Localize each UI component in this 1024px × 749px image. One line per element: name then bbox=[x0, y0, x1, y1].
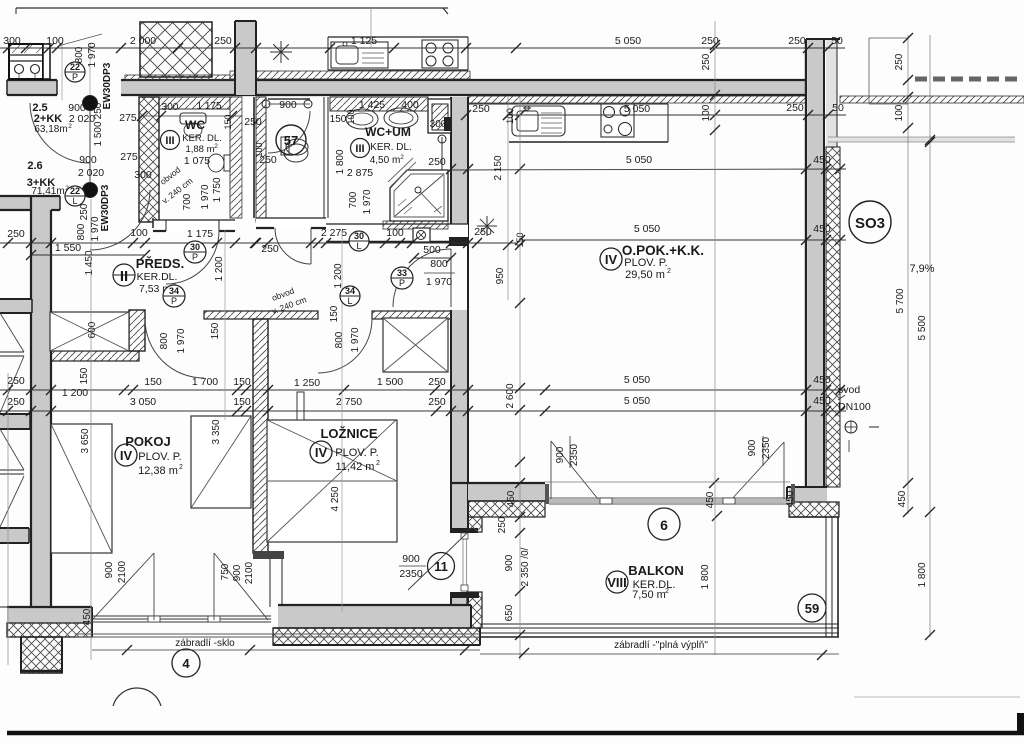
svg-text:250: 250 bbox=[214, 35, 232, 47]
svg-text:6: 6 bbox=[660, 517, 668, 533]
svg-text:EW30DP3: EW30DP3 bbox=[100, 184, 111, 231]
svg-text:WC+UM: WC+UM bbox=[365, 125, 411, 139]
svg-text:1 550: 1 550 bbox=[55, 242, 81, 254]
svg-text:700: 700 bbox=[182, 193, 193, 210]
svg-text:150: 150 bbox=[233, 376, 251, 388]
svg-text:250: 250 bbox=[79, 203, 90, 220]
svg-text:450: 450 bbox=[813, 395, 831, 407]
svg-text:IV: IV bbox=[315, 445, 328, 460]
svg-text:63,18m: 63,18m bbox=[34, 124, 67, 135]
svg-text:275: 275 bbox=[119, 112, 137, 124]
svg-text:250: 250 bbox=[497, 516, 508, 533]
svg-text:2350: 2350 bbox=[399, 568, 423, 580]
svg-text:DN100: DN100 bbox=[838, 401, 871, 413]
svg-text:2: 2 bbox=[400, 154, 404, 161]
svg-text:900: 900 bbox=[747, 439, 758, 456]
svg-text:5 050: 5 050 bbox=[615, 35, 641, 47]
svg-text:900: 900 bbox=[232, 564, 243, 581]
svg-text:2: 2 bbox=[376, 460, 380, 467]
svg-text:250: 250 bbox=[7, 375, 25, 387]
svg-text:II: II bbox=[120, 268, 128, 285]
svg-text:7,9%: 7,9% bbox=[909, 263, 934, 275]
svg-text:900: 900 bbox=[279, 99, 297, 111]
svg-text:30: 30 bbox=[354, 231, 364, 241]
svg-text:1 970: 1 970 bbox=[426, 276, 452, 288]
svg-text:950: 950 bbox=[495, 267, 506, 284]
svg-text:57: 57 bbox=[284, 133, 298, 148]
svg-text:1 125: 1 125 bbox=[351, 35, 377, 47]
svg-text:VIII: VIII bbox=[607, 575, 627, 590]
svg-text:2 020: 2 020 bbox=[78, 167, 104, 179]
svg-text:1 750: 1 750 bbox=[212, 177, 223, 202]
svg-text:100: 100 bbox=[130, 227, 148, 239]
svg-text:2350: 2350 bbox=[569, 443, 580, 466]
svg-text:250: 250 bbox=[472, 103, 490, 115]
svg-text:2: 2 bbox=[667, 268, 671, 275]
svg-text:PLOV. P.: PLOV. P. bbox=[138, 451, 181, 463]
svg-text:33: 33 bbox=[397, 268, 407, 278]
svg-text:2350: 2350 bbox=[761, 436, 772, 459]
svg-text:11,42 m: 11,42 m bbox=[336, 461, 375, 473]
svg-text:50: 50 bbox=[832, 102, 844, 114]
svg-text:1 075: 1 075 bbox=[184, 155, 210, 167]
svg-text:150: 150 bbox=[144, 376, 162, 388]
svg-text:KER. DL.: KER. DL. bbox=[370, 142, 412, 153]
svg-text:1 700: 1 700 bbox=[192, 376, 218, 388]
svg-text:250: 250 bbox=[261, 243, 279, 255]
svg-text:5 500: 5 500 bbox=[917, 315, 928, 340]
svg-text:100: 100 bbox=[701, 104, 712, 121]
svg-text:71,41m: 71,41m bbox=[31, 186, 64, 197]
svg-text:1 970: 1 970 bbox=[176, 328, 187, 353]
svg-text:150: 150 bbox=[233, 396, 251, 408]
svg-text:900: 900 bbox=[402, 553, 420, 565]
svg-text:1 970: 1 970 bbox=[200, 184, 211, 209]
svg-text:1 970: 1 970 bbox=[362, 189, 373, 214]
svg-text:L: L bbox=[72, 196, 77, 206]
svg-text:100: 100 bbox=[346, 109, 356, 124]
svg-text:P: P bbox=[72, 72, 78, 82]
svg-text:1 250: 1 250 bbox=[294, 377, 320, 389]
svg-text:450: 450 bbox=[813, 223, 831, 235]
svg-text:700: 700 bbox=[348, 191, 359, 208]
svg-text:400: 400 bbox=[401, 99, 419, 111]
svg-text:250: 250 bbox=[7, 228, 25, 240]
svg-text:1 970: 1 970 bbox=[87, 42, 98, 67]
svg-text:1 175: 1 175 bbox=[187, 228, 213, 240]
svg-text:800: 800 bbox=[430, 258, 448, 270]
svg-text:300: 300 bbox=[430, 119, 447, 130]
svg-text:2 150: 2 150 bbox=[493, 155, 504, 180]
svg-text:2 750: 2 750 bbox=[336, 396, 362, 408]
svg-text:3 050: 3 050 bbox=[130, 396, 156, 408]
svg-text:100: 100 bbox=[46, 35, 64, 47]
svg-text:IV: IV bbox=[120, 448, 133, 463]
svg-text:800: 800 bbox=[76, 223, 87, 240]
svg-text:900: 900 bbox=[79, 154, 97, 166]
svg-text:800: 800 bbox=[159, 332, 170, 349]
svg-text:5 050: 5 050 bbox=[624, 103, 650, 115]
svg-text:29,50 m: 29,50 m bbox=[625, 269, 665, 281]
svg-text:450: 450 bbox=[813, 374, 831, 386]
svg-text:5 050: 5 050 bbox=[626, 154, 652, 166]
svg-text:1 800: 1 800 bbox=[917, 562, 928, 587]
svg-text:450: 450 bbox=[705, 491, 716, 508]
svg-text:2 020: 2 020 bbox=[69, 113, 95, 125]
svg-text:PLOV. P.: PLOV. P. bbox=[335, 447, 378, 459]
svg-text:2 275: 2 275 bbox=[321, 227, 347, 239]
svg-text:svod: svod bbox=[838, 384, 860, 396]
svg-text:KER.DL.: KER.DL. bbox=[137, 271, 178, 283]
svg-text:59: 59 bbox=[805, 601, 819, 616]
svg-text:4,50 m: 4,50 m bbox=[370, 155, 401, 166]
svg-text:L: L bbox=[356, 241, 361, 251]
svg-text:250: 250 bbox=[894, 53, 905, 70]
svg-text:22: 22 bbox=[70, 62, 80, 72]
svg-text:3 650: 3 650 bbox=[80, 428, 91, 453]
svg-text:1 450: 1 450 bbox=[84, 250, 95, 275]
svg-text:PŘEDS.: PŘEDS. bbox=[136, 256, 184, 271]
svg-text:2: 2 bbox=[179, 464, 183, 471]
svg-text:50: 50 bbox=[831, 35, 843, 47]
svg-text:1 800: 1 800 bbox=[700, 564, 711, 589]
svg-text:P: P bbox=[192, 252, 198, 262]
svg-text:300: 300 bbox=[134, 169, 152, 181]
svg-text:zábradlí -sklo: zábradlí -sklo bbox=[175, 638, 235, 649]
svg-text:2100: 2100 bbox=[244, 561, 255, 584]
svg-text:1,88 m: 1,88 m bbox=[185, 144, 214, 155]
svg-text:1 200: 1 200 bbox=[214, 256, 225, 281]
svg-text:1 800: 1 800 bbox=[335, 149, 346, 174]
svg-text:1 200: 1 200 bbox=[62, 387, 88, 399]
svg-text:150: 150 bbox=[329, 305, 340, 322]
svg-text:250: 250 bbox=[428, 156, 446, 168]
svg-text:L: L bbox=[347, 296, 352, 306]
svg-text:1 425: 1 425 bbox=[359, 99, 385, 111]
svg-text:2: 2 bbox=[214, 143, 218, 150]
svg-text:PLOV. P.: PLOV. P. bbox=[624, 257, 667, 269]
svg-text:300: 300 bbox=[162, 102, 179, 113]
svg-text:BALKON: BALKON bbox=[628, 563, 684, 578]
svg-text:POKOJ: POKOJ bbox=[125, 434, 171, 449]
svg-text:300: 300 bbox=[3, 35, 21, 47]
svg-text:1 970: 1 970 bbox=[90, 216, 101, 241]
svg-text:2100: 2100 bbox=[117, 560, 128, 583]
svg-text:250: 250 bbox=[7, 396, 25, 408]
svg-text:100: 100 bbox=[894, 104, 905, 121]
svg-text:2 350 /0/: 2 350 /0/ bbox=[520, 547, 531, 586]
svg-text:500: 500 bbox=[423, 244, 441, 256]
svg-text:5 050: 5 050 bbox=[624, 395, 650, 407]
svg-text:P: P bbox=[399, 278, 405, 288]
svg-text:150: 150 bbox=[223, 114, 233, 129]
svg-text:WC: WC bbox=[185, 118, 205, 132]
svg-text:30: 30 bbox=[190, 242, 200, 252]
svg-text:zábradlí -"plná výplň": zábradlí -"plná výplň" bbox=[614, 640, 708, 651]
svg-text:O.POK.+K.K.: O.POK.+K.K. bbox=[622, 243, 704, 258]
svg-text:800: 800 bbox=[74, 46, 85, 63]
svg-text:450: 450 bbox=[897, 490, 908, 507]
svg-text:250: 250 bbox=[474, 226, 492, 238]
svg-text:275: 275 bbox=[120, 151, 138, 163]
svg-text:450: 450 bbox=[813, 154, 831, 166]
svg-text:750: 750 bbox=[220, 563, 231, 580]
svg-text:4: 4 bbox=[182, 656, 190, 671]
svg-text:4 250: 4 250 bbox=[330, 486, 341, 511]
svg-text:11: 11 bbox=[434, 559, 448, 574]
svg-text:900: 900 bbox=[104, 561, 115, 578]
svg-text:LOŽNICE: LOŽNICE bbox=[320, 426, 377, 441]
svg-text:900: 900 bbox=[555, 446, 566, 463]
svg-text:650: 650 bbox=[504, 604, 515, 621]
svg-text:SO3: SO3 bbox=[855, 215, 885, 232]
svg-text:22: 22 bbox=[70, 186, 80, 196]
svg-text:150: 150 bbox=[330, 114, 347, 125]
svg-text:250: 250 bbox=[786, 102, 804, 114]
svg-text:600: 600 bbox=[87, 321, 98, 338]
svg-text:800: 800 bbox=[334, 331, 345, 348]
svg-text:2: 2 bbox=[665, 588, 669, 595]
svg-text:100: 100 bbox=[386, 227, 404, 239]
svg-text:IV: IV bbox=[605, 252, 618, 267]
svg-text:1 175: 1 175 bbox=[196, 101, 221, 112]
svg-text:7,50 m: 7,50 m bbox=[632, 589, 666, 601]
svg-text:450: 450 bbox=[506, 490, 517, 507]
svg-text:2.6: 2.6 bbox=[27, 160, 42, 172]
svg-text:250: 250 bbox=[701, 53, 712, 70]
svg-text:34: 34 bbox=[345, 286, 355, 296]
svg-text:III: III bbox=[355, 143, 364, 155]
svg-text:250: 250 bbox=[428, 396, 446, 408]
svg-text:250: 250 bbox=[244, 116, 262, 128]
svg-text:250: 250 bbox=[428, 376, 446, 388]
svg-text:900: 900 bbox=[504, 554, 515, 571]
svg-text:150: 150 bbox=[210, 322, 221, 339]
svg-text:2: 2 bbox=[68, 123, 72, 130]
svg-text:1 970: 1 970 bbox=[350, 327, 361, 352]
svg-text:3 350: 3 350 bbox=[211, 419, 222, 444]
svg-text:2 600: 2 600 bbox=[505, 383, 516, 408]
svg-text:34: 34 bbox=[169, 286, 179, 296]
svg-text:150: 150 bbox=[79, 367, 90, 384]
svg-text:250: 250 bbox=[788, 35, 806, 47]
svg-text:5 050: 5 050 bbox=[634, 223, 660, 235]
svg-text:P: P bbox=[171, 296, 177, 306]
svg-text:EW30DP3: EW30DP3 bbox=[102, 62, 113, 109]
svg-text:III: III bbox=[165, 135, 174, 147]
svg-text:450: 450 bbox=[785, 490, 796, 507]
svg-text:250: 250 bbox=[701, 35, 719, 47]
svg-text:2 875: 2 875 bbox=[347, 167, 373, 179]
svg-text:1 500: 1 500 bbox=[377, 376, 403, 388]
svg-text:12,38 m: 12,38 m bbox=[138, 465, 178, 477]
svg-text:5 700: 5 700 bbox=[895, 288, 906, 313]
svg-text:250: 250 bbox=[259, 154, 277, 166]
svg-text:5 050: 5 050 bbox=[624, 374, 650, 386]
svg-text:2 000: 2 000 bbox=[130, 35, 156, 47]
